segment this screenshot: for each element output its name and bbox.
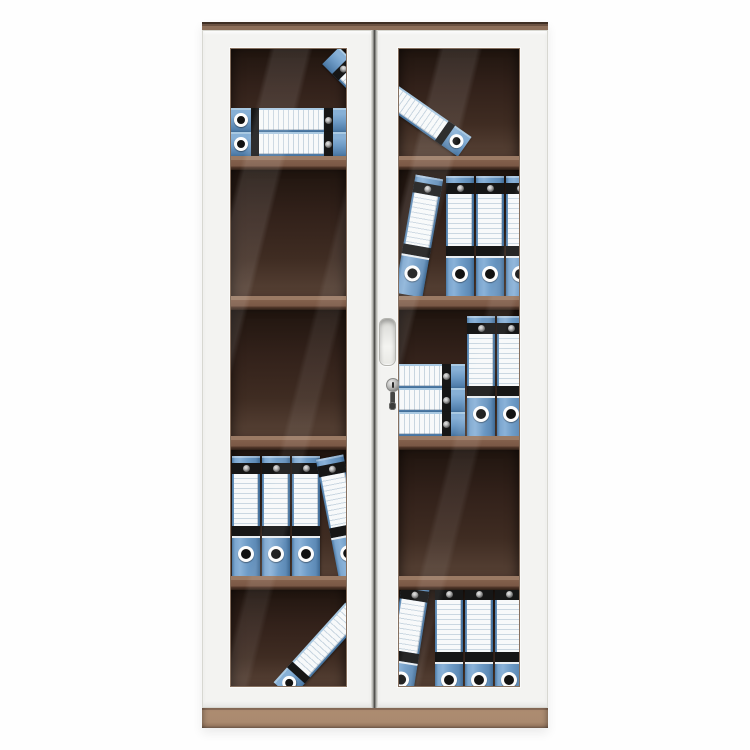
binder-foot xyxy=(292,538,320,576)
binder-spine-upright xyxy=(497,316,520,436)
binder-spine-lying xyxy=(274,586,347,687)
metal-eyelet-icon xyxy=(443,373,450,380)
finger-hole-icon xyxy=(403,264,422,283)
binder-row xyxy=(232,456,322,576)
finger-hole-icon xyxy=(234,137,248,151)
binder-label xyxy=(398,366,442,386)
binder-foot xyxy=(476,258,504,296)
interior-compartment xyxy=(399,170,519,296)
binder-black-band xyxy=(506,246,520,256)
cabinet-top-trim xyxy=(202,22,548,30)
binder-black-band xyxy=(476,246,504,256)
binder-spine-upright xyxy=(398,581,430,687)
metal-eyelet-icon xyxy=(478,325,485,332)
binder-label xyxy=(497,600,520,652)
binder-black-band xyxy=(465,652,493,662)
binder-black-band xyxy=(467,386,495,396)
metal-eyelet-icon xyxy=(303,465,310,472)
metal-eyelet-icon xyxy=(328,465,336,473)
binder-spine-upright xyxy=(232,456,260,576)
interior-compartment xyxy=(399,590,519,686)
binder-label xyxy=(259,134,324,154)
interior-compartment xyxy=(399,450,519,576)
interior-compartment xyxy=(399,310,519,436)
binder-black-band xyxy=(442,364,451,388)
finger-hole-icon xyxy=(398,670,410,687)
left-glass-door xyxy=(202,30,372,708)
right-glass-pane xyxy=(398,48,520,687)
finger-hole-icon xyxy=(447,131,466,150)
binder-foot xyxy=(398,662,417,687)
binder-black-band xyxy=(435,589,463,600)
binder-foot xyxy=(465,664,493,687)
binder-black-band xyxy=(262,526,290,536)
binder-foot xyxy=(232,538,260,576)
metal-eyelet-icon xyxy=(273,465,280,472)
binder-foot xyxy=(446,258,474,296)
metal-eyelet-icon xyxy=(457,185,464,192)
finger-hole-icon xyxy=(298,546,314,562)
binder-black-band xyxy=(292,526,320,536)
binder-black-band xyxy=(506,183,520,194)
binder-black-band xyxy=(232,526,260,536)
keyhole-slot-icon xyxy=(392,382,394,388)
binder-stack xyxy=(398,364,465,436)
binder-tail xyxy=(451,388,465,412)
binder-spine-upright xyxy=(495,582,520,687)
binder-label xyxy=(398,414,442,434)
binder-top-cap xyxy=(467,316,495,323)
binder-top-cap xyxy=(497,316,520,323)
finger-hole-icon xyxy=(503,406,519,422)
cabinet-shelf xyxy=(231,576,346,590)
interior-compartment xyxy=(231,310,346,436)
binder-spine-upright xyxy=(446,176,474,296)
finger-hole-icon xyxy=(512,266,520,282)
binder-tail xyxy=(333,132,347,156)
interior-compartment xyxy=(399,49,519,156)
finger-hole-icon xyxy=(339,544,347,563)
metal-eyelet-icon xyxy=(487,185,494,192)
finger-hole-icon xyxy=(268,546,284,562)
binder-foot xyxy=(435,664,463,687)
binder-top-cap xyxy=(232,456,260,463)
cabinet-shelf xyxy=(231,436,346,450)
binder-spine-upright xyxy=(398,174,443,297)
left-glass-pane xyxy=(230,48,347,687)
binder-black-band xyxy=(465,589,493,600)
binder-spine-upright xyxy=(262,456,290,576)
metal-eyelet-icon xyxy=(325,141,332,148)
binder-label xyxy=(499,334,520,386)
finger-hole-icon xyxy=(501,672,517,687)
binder-spine-upright xyxy=(476,176,504,296)
cabinet-body xyxy=(202,30,548,708)
binder-top-cap xyxy=(446,176,474,183)
cabinet-shelf xyxy=(231,156,346,170)
binder-foot xyxy=(331,535,347,578)
binder-label xyxy=(259,110,324,130)
binder-spine-lying xyxy=(398,412,465,436)
binder-spine-upright xyxy=(292,456,320,576)
binder-row xyxy=(467,316,520,436)
binder-label xyxy=(448,194,472,246)
binder-black-band xyxy=(497,386,520,396)
binder-label xyxy=(398,599,425,654)
cabinet-base-trim xyxy=(202,708,548,728)
binder-black-band xyxy=(476,183,504,194)
binder-label xyxy=(405,193,438,248)
binder-top-cap xyxy=(262,456,290,463)
cabinet-shelf xyxy=(231,296,346,310)
metal-eyelet-icon xyxy=(410,591,418,599)
binder-spine-lying xyxy=(398,364,465,388)
finger-hole-icon xyxy=(471,672,487,687)
binder-label xyxy=(469,334,493,386)
binder-label xyxy=(234,474,258,526)
binder-hole-end xyxy=(231,132,251,156)
binder-spine-lying xyxy=(231,108,347,132)
binder-label xyxy=(478,194,502,246)
cabinet-shelf xyxy=(399,576,519,590)
binder-label xyxy=(437,600,461,652)
binder-hole-end xyxy=(231,108,251,132)
finger-hole-icon xyxy=(234,113,248,127)
binder-foot xyxy=(506,258,520,296)
binder-foot xyxy=(497,398,520,436)
binder-black-band xyxy=(497,323,520,334)
metal-eyelet-icon xyxy=(446,591,453,598)
binder-black-band xyxy=(262,463,290,474)
interior-compartment xyxy=(231,590,346,686)
metal-eyelet-icon xyxy=(508,325,515,332)
cabinet-shelf xyxy=(399,296,519,310)
metal-eyelet-icon xyxy=(506,591,513,598)
binder-foot xyxy=(467,398,495,436)
interior-compartment xyxy=(231,49,346,156)
binder-foot xyxy=(495,664,520,687)
binder-top-cap xyxy=(476,176,504,183)
binder-label xyxy=(294,474,318,526)
binder-black-band xyxy=(442,412,451,436)
binder-black-band xyxy=(442,388,451,412)
finger-hole-icon xyxy=(238,546,254,562)
finger-hole-icon xyxy=(452,266,468,282)
binder-label xyxy=(398,80,447,139)
binder-black-band xyxy=(495,589,520,600)
right-glass-door xyxy=(377,30,548,708)
filing-cabinet xyxy=(202,22,548,728)
keyhole-lock xyxy=(386,378,400,392)
binder-black-band xyxy=(251,132,259,156)
binder-black-band xyxy=(251,108,259,132)
binder-stack xyxy=(231,108,347,156)
binder-tail xyxy=(451,364,465,388)
binder-row xyxy=(435,582,520,687)
binder-spine-upright xyxy=(506,176,520,296)
cabinet-shelf xyxy=(399,436,519,450)
binder-black-band xyxy=(467,323,495,334)
metal-eyelet-icon xyxy=(325,117,332,124)
binder-tail xyxy=(333,108,347,132)
metal-eyelet-icon xyxy=(423,185,431,193)
binder-label xyxy=(467,600,491,652)
metal-eyelet-icon xyxy=(476,591,483,598)
finger-hole-icon xyxy=(482,266,498,282)
metal-eyelet-icon xyxy=(517,185,521,192)
binder-label xyxy=(294,604,347,676)
binder-black-band xyxy=(446,246,474,256)
binder-tail xyxy=(451,412,465,436)
product-photo-scene xyxy=(0,0,750,750)
binder-spine-lying xyxy=(398,65,472,156)
binder-spine-upright xyxy=(465,582,493,687)
binder-top-cap xyxy=(506,176,520,183)
interior-compartment xyxy=(231,170,346,296)
key-bow xyxy=(389,402,396,410)
binder-label xyxy=(321,472,347,528)
metal-eyelet-icon xyxy=(243,465,250,472)
binder-spine-lying xyxy=(398,388,465,412)
finger-hole-icon xyxy=(473,406,489,422)
binder-black-band xyxy=(495,652,520,662)
binder-label xyxy=(508,194,520,246)
binder-spine-lying xyxy=(231,132,347,156)
binder-black-band xyxy=(324,132,333,156)
cabinet-shelf xyxy=(399,156,519,170)
finger-hole-icon xyxy=(441,672,457,687)
binder-black-band xyxy=(446,183,474,194)
binder-label xyxy=(398,390,442,410)
binder-spine-upright xyxy=(435,582,463,687)
binder-row xyxy=(446,176,520,296)
binder-black-band xyxy=(232,463,260,474)
interior-compartment xyxy=(231,450,346,576)
binder-foot xyxy=(262,538,290,576)
metal-eyelet-icon xyxy=(443,421,450,428)
binder-foot xyxy=(398,255,429,297)
metal-eyelet-icon xyxy=(443,397,450,404)
recessed-door-handle xyxy=(379,318,396,366)
binder-spine-upright xyxy=(467,316,495,436)
binder-black-band xyxy=(435,652,463,662)
key-in-lock xyxy=(389,392,396,410)
binder-label xyxy=(264,474,288,526)
binder-black-band xyxy=(324,108,333,132)
